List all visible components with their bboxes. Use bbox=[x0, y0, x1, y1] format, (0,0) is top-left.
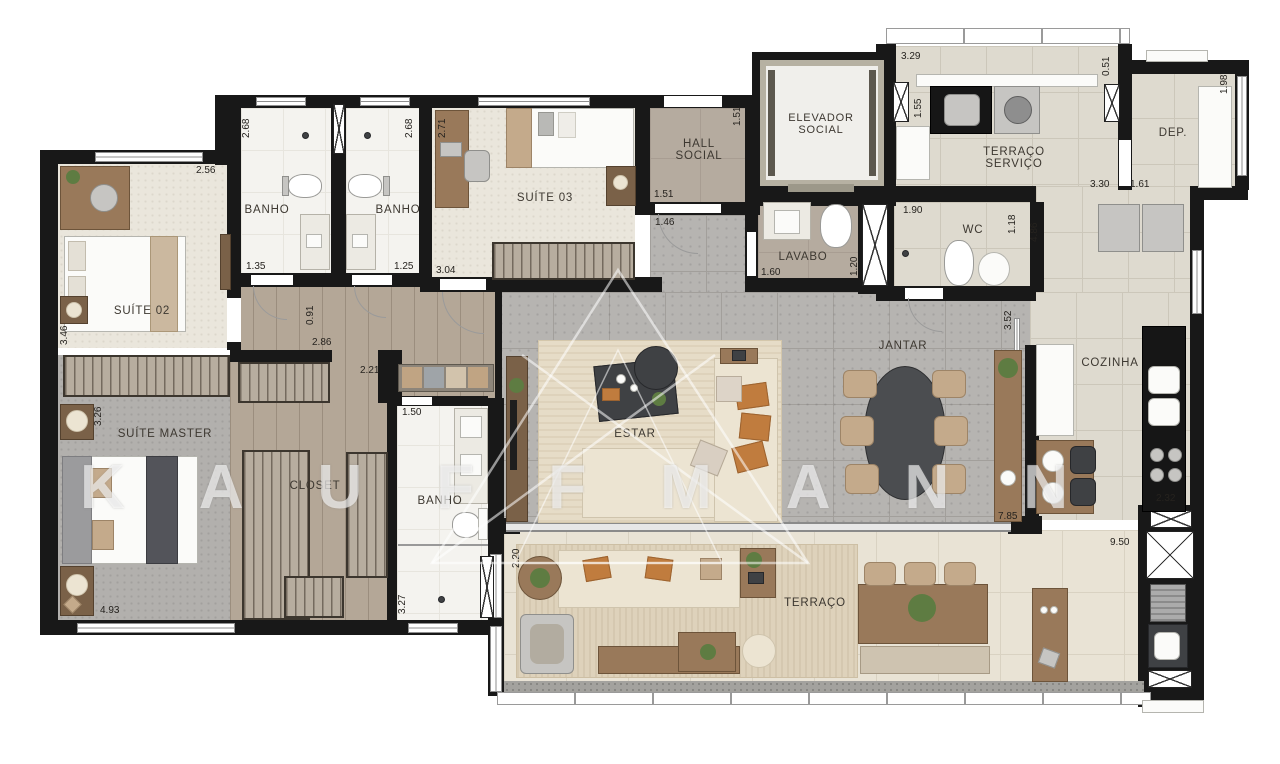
burner bbox=[1168, 468, 1182, 482]
outdoor-bench bbox=[860, 646, 990, 674]
label-terraco-servico: TERRAÇO SERVIÇO bbox=[964, 146, 1064, 170]
label-terraco: TERRAÇO bbox=[770, 597, 860, 609]
label-jantar: JANTAR bbox=[863, 340, 943, 352]
toilet-banho-2 bbox=[348, 174, 382, 198]
sink-banho-2 bbox=[352, 234, 368, 248]
label-cozinha: COZINHA bbox=[1065, 357, 1155, 369]
dim-servico-right: 0.51 bbox=[1102, 57, 1112, 76]
dim-suite02-left: 3.46 bbox=[60, 326, 70, 345]
wall bbox=[1190, 186, 1204, 520]
label-banho-2: BANHO bbox=[368, 204, 428, 216]
lamp-icon bbox=[66, 574, 88, 596]
service-balcony-rail bbox=[886, 28, 1130, 44]
dim-suite03-left: 2.71 bbox=[438, 119, 448, 138]
dim-banho2-depth: 2.68 bbox=[405, 119, 415, 138]
plant-sideboard bbox=[998, 358, 1018, 378]
label-hall-social: HALL SOCIAL bbox=[664, 138, 734, 162]
wall bbox=[635, 95, 650, 215]
dining-chair bbox=[932, 370, 966, 398]
bed-headboard-suite-03 bbox=[506, 108, 532, 168]
pouf bbox=[742, 634, 776, 668]
window-suite-02 bbox=[95, 152, 203, 162]
pillow bbox=[68, 241, 86, 271]
lamp-icon bbox=[66, 410, 88, 432]
toilet-banho-1 bbox=[288, 174, 322, 198]
dim-wc-width: 1.90 bbox=[903, 206, 922, 216]
dim-servico-b1: 3.30 bbox=[1090, 180, 1109, 190]
outdoor-chair bbox=[904, 562, 936, 586]
shower-drain-icon bbox=[438, 596, 445, 603]
wall bbox=[876, 286, 1036, 301]
plant-suite-02 bbox=[66, 170, 80, 184]
banho-1-door bbox=[251, 275, 293, 285]
building-edge bbox=[1142, 700, 1204, 713]
wall bbox=[230, 350, 332, 362]
dim-hall-v: 1.51 bbox=[733, 107, 743, 126]
chair-suite-02 bbox=[90, 184, 118, 212]
dim-banho1-width: 1.35 bbox=[246, 262, 265, 272]
dim-banho-master-depth: 3.27 bbox=[398, 595, 408, 614]
burner bbox=[1168, 448, 1182, 462]
floor-plan: SUÍTE 02 BANHO BANHO SUÍTE 03 HALL SOCIA… bbox=[0, 0, 1280, 764]
dim-servico-b2: 1.61 bbox=[1130, 180, 1149, 190]
label-suite-02: SUÍTE 02 bbox=[92, 305, 192, 317]
washing-machine-drum bbox=[1004, 96, 1032, 124]
dim-lavabo-depth: 1.20 bbox=[850, 257, 860, 276]
dim-wc-depth: 1.18 bbox=[1008, 215, 1018, 234]
shower-head-icon bbox=[902, 250, 909, 257]
lavabo-toilet bbox=[820, 204, 852, 248]
banho-2-door bbox=[352, 275, 392, 285]
dim-corridor-d: 4.86 bbox=[1030, 223, 1040, 242]
laptop-icon bbox=[440, 142, 462, 157]
wall bbox=[1030, 202, 1044, 292]
window-banho-master bbox=[408, 623, 458, 633]
armchair-cushion bbox=[530, 624, 564, 664]
window-banho-1 bbox=[256, 97, 306, 106]
dim-banho1-depth: 2.68 bbox=[242, 119, 252, 138]
shaft bbox=[1148, 670, 1192, 688]
label-suite-master: SUÍTE MASTER bbox=[105, 428, 225, 440]
wall bbox=[419, 103, 432, 273]
dep-shelf bbox=[1146, 50, 1208, 62]
shaft bbox=[1104, 84, 1120, 122]
burner bbox=[1150, 468, 1164, 482]
tv-panel-suite-02 bbox=[220, 234, 231, 290]
hall-door bbox=[655, 204, 721, 213]
service-tank-sink bbox=[944, 94, 980, 126]
shaft bbox=[1146, 531, 1194, 579]
shaft bbox=[333, 104, 345, 154]
label-banho-1: BANHO bbox=[237, 204, 297, 216]
wc-sink bbox=[978, 252, 1010, 286]
kitchen-sink-1 bbox=[1148, 366, 1180, 394]
sink-banho-1 bbox=[306, 234, 322, 248]
window-suite-master bbox=[77, 623, 235, 633]
kitchen-sink-2 bbox=[1148, 398, 1180, 426]
service-sink bbox=[1154, 632, 1180, 660]
service-cabinet bbox=[896, 126, 930, 180]
dim-servico-left: 1.55 bbox=[914, 99, 924, 118]
label-suite-03: SUÍTE 03 bbox=[495, 192, 595, 204]
entry-door bbox=[664, 96, 722, 107]
label-wc: WC bbox=[953, 224, 993, 236]
lamp-icon bbox=[613, 175, 628, 190]
pillow bbox=[558, 112, 576, 138]
dep-bed bbox=[1198, 86, 1232, 188]
wall bbox=[1128, 60, 1248, 74]
shower-head-icon bbox=[364, 132, 371, 139]
shaft bbox=[893, 82, 909, 122]
window-terraco-left-2 bbox=[490, 626, 502, 692]
label-elevador-social: ELEVADOR SOCIAL bbox=[771, 112, 871, 136]
watermark-text: KAUFFMANN bbox=[80, 452, 1142, 523]
dining-chair bbox=[843, 370, 877, 398]
outdoor-chair bbox=[864, 562, 896, 586]
dim-suite-master-left: 3.26 bbox=[94, 407, 104, 426]
dim-corridor-c: 2.21 bbox=[360, 366, 379, 376]
shaft bbox=[1150, 510, 1192, 528]
window-suite-03 bbox=[478, 97, 590, 106]
dim-suite-master-width: 4.93 bbox=[100, 606, 119, 616]
wc-toilet bbox=[944, 240, 974, 286]
dim-corridor-b: 2.86 bbox=[312, 338, 331, 348]
kauffmann-logo-icon bbox=[410, 255, 830, 575]
wardrobe-suite-master bbox=[63, 355, 230, 397]
pillow bbox=[92, 520, 114, 550]
shaft bbox=[862, 204, 888, 286]
lavabo-sink bbox=[774, 210, 800, 234]
dim-corridor-a: 0.91 bbox=[306, 306, 316, 325]
suite-02-door bbox=[227, 298, 241, 342]
wardrobe-corridor bbox=[238, 362, 330, 403]
burner bbox=[1150, 448, 1164, 462]
laundry-appliance-2 bbox=[1142, 204, 1184, 252]
dining-chair bbox=[840, 416, 874, 446]
dim-hall-h2: 1.46 bbox=[655, 218, 674, 228]
dim-dep-depth: 1.98 bbox=[1220, 75, 1230, 94]
plant-table bbox=[700, 644, 716, 660]
outdoor-chair bbox=[944, 562, 976, 586]
chair-suite-03 bbox=[464, 150, 490, 182]
toilet-tank bbox=[282, 176, 289, 196]
bar-console bbox=[1032, 588, 1068, 682]
plant-dining bbox=[908, 594, 936, 622]
decor bbox=[1050, 606, 1058, 614]
elevator-door bbox=[788, 184, 854, 192]
terraco-railing bbox=[497, 692, 1151, 705]
bed-runner-suite-02 bbox=[150, 236, 178, 332]
pillow bbox=[538, 112, 554, 136]
toilet-tank bbox=[383, 176, 390, 196]
dim-suite02-top: 2.56 bbox=[196, 166, 215, 176]
lamp-icon bbox=[66, 302, 82, 318]
dim-jantar-v: 3.52 bbox=[1004, 311, 1014, 330]
window-cozinha bbox=[1192, 250, 1202, 314]
duct bbox=[1150, 584, 1186, 622]
laundry-appliance-1 bbox=[1098, 204, 1140, 252]
dim-hall-h: 1.51 bbox=[654, 190, 673, 200]
window-banho-2 bbox=[360, 97, 410, 106]
label-dep: DEP. bbox=[1143, 127, 1203, 139]
window-dep bbox=[1237, 76, 1247, 176]
wall bbox=[40, 150, 58, 634]
shower-head-icon bbox=[302, 132, 309, 139]
dim-servico-width: 3.29 bbox=[901, 52, 920, 62]
dim-cozinha-counter: 2.32 bbox=[1156, 494, 1175, 504]
dining-chair bbox=[934, 416, 968, 446]
wardrobe-closet-bottom bbox=[284, 576, 344, 618]
dim-cozinha-w: 9.50 bbox=[1110, 538, 1129, 548]
decor bbox=[1040, 606, 1048, 614]
wall bbox=[876, 186, 1036, 202]
